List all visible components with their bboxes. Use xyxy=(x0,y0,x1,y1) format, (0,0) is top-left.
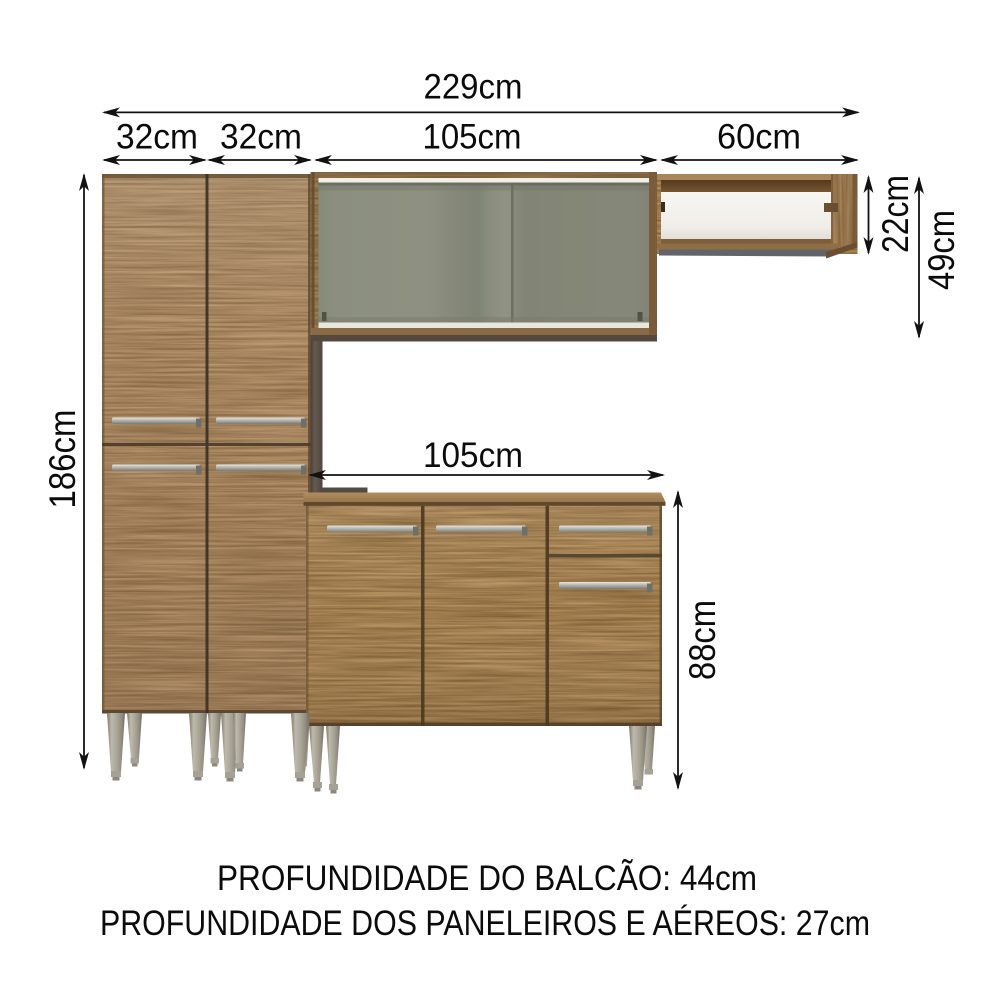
svg-text:32cm: 32cm xyxy=(116,118,198,157)
svg-text:PROFUNDIDADE DOS PANELEIROS E: PROFUNDIDADE DOS PANELEIROS E AÉREOS: 27… xyxy=(100,904,870,943)
svg-text:186cm: 186cm xyxy=(42,410,83,509)
svg-text:PROFUNDIDADE DO BALCÃO: 44cm: PROFUNDIDADE DO BALCÃO: 44cm xyxy=(217,859,757,898)
svg-text:229cm: 229cm xyxy=(424,68,523,107)
svg-text:88cm: 88cm xyxy=(682,600,723,680)
svg-text:105cm: 105cm xyxy=(423,118,522,157)
svg-text:49cm: 49cm xyxy=(921,210,962,290)
svg-text:105cm: 105cm xyxy=(423,436,523,475)
svg-text:22cm: 22cm xyxy=(875,175,916,253)
svg-text:32cm: 32cm xyxy=(220,118,302,157)
svg-text:60cm: 60cm xyxy=(717,118,801,157)
